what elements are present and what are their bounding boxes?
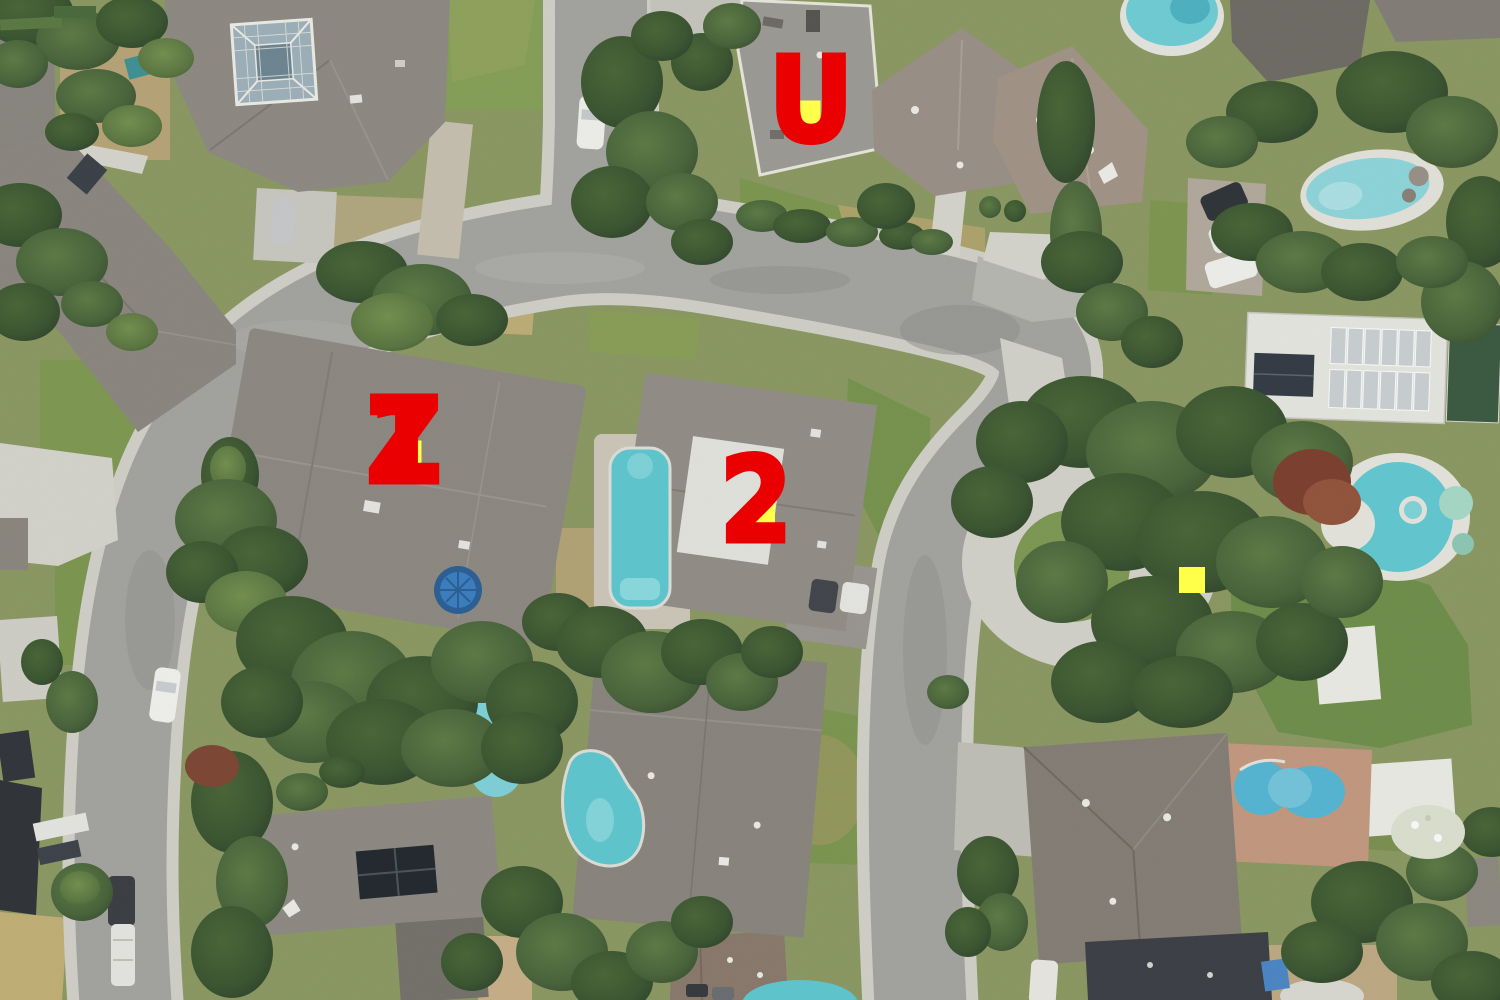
marker-letter-U[interactable]: U [769,41,853,159]
task-marker-overlay: UZ12 [0,0,1500,1000]
marker-letter-1[interactable]: 1 [368,382,440,500]
marker-letter-2[interactable]: 2 [720,441,792,559]
marker-square-square-only[interactable] [1179,567,1205,593]
aerial-map-screenshot: UZ12 [0,0,1500,1000]
